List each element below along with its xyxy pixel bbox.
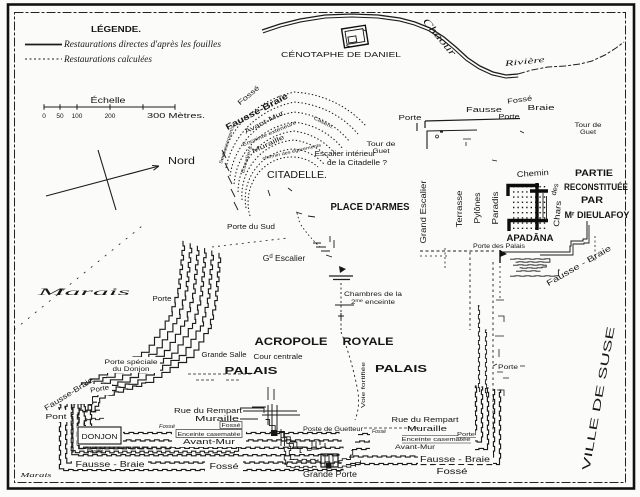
svg-text:Fausse - Braie: Fausse - Braie <box>420 455 491 464</box>
svg-text:Terrasse: Terrasse <box>455 190 464 228</box>
svg-text:Restaurations calculées: Restaurations calculées <box>63 54 153 64</box>
svg-text:Marais: Marais <box>35 288 131 298</box>
svg-text:300 Mètres.: 300 Mètres. <box>147 113 205 120</box>
svg-text:0: 0 <box>42 113 46 120</box>
svg-text:Restaurations directes d'après: Restaurations directes d'après les fouil… <box>63 39 222 49</box>
svg-text:Pylônes: Pylônes <box>473 193 482 224</box>
svg-text:Voie fortifiée: Voie fortifiée <box>361 362 367 408</box>
svg-text:Avant-Mur: Avant-Mur <box>183 439 236 446</box>
svg-text:ACROPOLE: ACROPOLE <box>255 336 328 348</box>
svg-text:Fausse: Fausse <box>466 107 502 114</box>
svg-text:Porte spéciale: Porte spéciale <box>105 359 158 366</box>
svg-text:Échelle: Échelle <box>91 95 126 105</box>
svg-text:Pont: Pont <box>46 412 68 421</box>
svg-text:Porte du Sud: Porte du Sud <box>227 224 275 231</box>
svg-text:PALAIS: PALAIS <box>375 364 427 375</box>
svg-text:Rue du Rempart: Rue du Rempart <box>392 415 460 424</box>
svg-text:LÉGENDE.: LÉGENDE. <box>91 24 141 34</box>
svg-text:Fossé: Fossé <box>210 461 239 471</box>
svg-text:200: 200 <box>105 113 116 120</box>
svg-text:Tour de: Tour de <box>575 122 602 129</box>
svg-text:Gd Escalier: Gd Escalier <box>263 253 306 263</box>
svg-text:50: 50 <box>56 113 64 120</box>
svg-text:DONJON: DONJON <box>82 432 118 441</box>
svg-text:CITADELLE.: CITADELLE. <box>267 170 327 181</box>
svg-text:100: 100 <box>72 113 83 120</box>
svg-text:ROYALE: ROYALE <box>343 336 394 348</box>
svg-text:Paradis: Paradis <box>491 192 500 225</box>
svg-text:Porte des Palais: Porte des Palais <box>473 243 526 250</box>
svg-text:Fausse - Braie: Fausse - Braie <box>76 460 146 469</box>
svg-text:PLACE D'ARMES: PLACE D'ARMES <box>331 201 410 213</box>
svg-text:CÉNOTAPHE DE DANIEL: CÉNOTAPHE DE DANIEL <box>281 50 401 59</box>
svg-text:Nord: Nord <box>168 156 195 167</box>
svg-text:RECONSTITUÉE: RECONSTITUÉE <box>564 182 628 192</box>
svg-text:du Donjon: du Donjon <box>113 366 150 373</box>
svg-text:Guet: Guet <box>580 129 596 136</box>
svg-text:Enceinte casematée: Enceinte casematée <box>178 432 241 438</box>
svg-text:Avant-Mur: Avant-Mur <box>395 444 436 451</box>
svg-text:PARTIE: PARTIE <box>575 168 613 178</box>
svg-text:Fossé: Fossé <box>87 449 104 455</box>
svg-text:Escalier intérieur: Escalier intérieur <box>315 151 377 158</box>
svg-text:Chambres de la: Chambres de la <box>344 291 402 298</box>
svg-text:Fossé: Fossé <box>437 466 468 476</box>
svg-text:Mr DIEULAFOY: Mr DIEULAFOY <box>565 210 630 220</box>
svg-text:Fossé: Fossé <box>372 429 386 435</box>
svg-text:Enceinte casematée: Enceinte casematée <box>402 437 471 443</box>
svg-text:Grand Escalier: Grand Escalier <box>419 180 428 243</box>
svg-text:Grande Porte: Grande Porte <box>303 470 358 479</box>
svg-text:Grande Salle: Grande Salle <box>202 352 247 359</box>
svg-text:PAR: PAR <box>581 195 604 205</box>
svg-text:Muraille: Muraille <box>407 424 447 433</box>
svg-text:Porte: Porte <box>499 114 520 121</box>
svg-text:PALAIS: PALAIS <box>225 366 278 377</box>
svg-text:Cour centrale: Cour centrale <box>254 354 303 361</box>
svg-text:Fossé: Fossé <box>222 423 241 429</box>
svg-text:Porte: Porte <box>399 113 422 122</box>
svg-text:Braie: Braie <box>528 105 555 112</box>
svg-text:Porte: Porte <box>153 296 172 303</box>
svg-text:Porte: Porte <box>498 364 518 371</box>
svg-text:Tour de: Tour de <box>367 141 397 148</box>
svg-text:de la Citadelle ?: de la Citadelle ? <box>327 160 387 167</box>
svg-text:Marais: Marais <box>19 473 53 479</box>
svg-text:Fossé: Fossé <box>159 424 175 430</box>
svg-text:Poste de Guetteur: Poste de Guetteur <box>303 426 364 433</box>
